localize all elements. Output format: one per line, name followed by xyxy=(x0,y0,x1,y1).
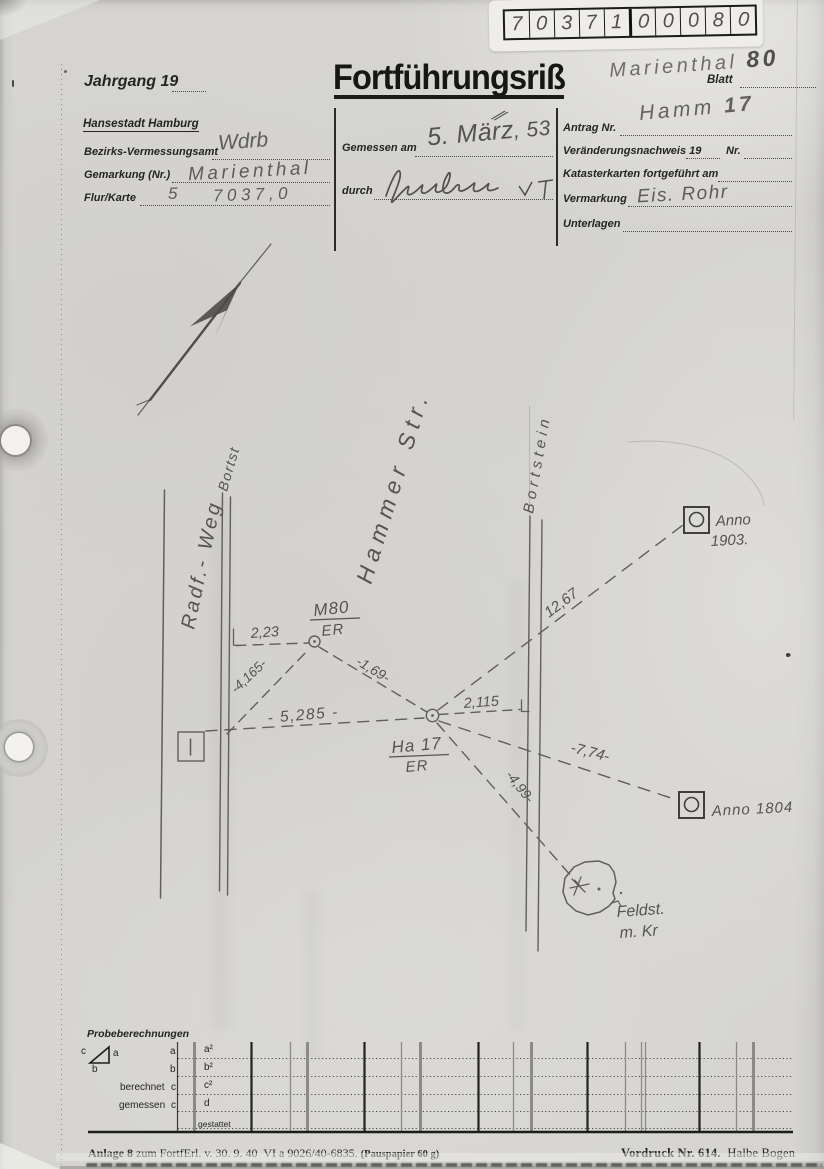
svg-text:Bortstein: Bortstein xyxy=(520,414,554,515)
svg-text:1903.: 1903. xyxy=(710,531,748,550)
svg-text:ER: ER xyxy=(321,621,345,640)
svg-text:Hammer Str.: Hammer Str. xyxy=(351,387,435,587)
svg-text:Ha 17: Ha 17 xyxy=(391,734,443,757)
svg-text:2,115: 2,115 xyxy=(462,694,500,713)
svg-text:-1,69-: -1,69- xyxy=(353,653,393,686)
svg-text:ER: ER xyxy=(405,757,429,776)
svg-text:-4,165-: -4,165- xyxy=(228,656,270,696)
svg-text:2,23: 2,23 xyxy=(249,624,279,642)
svg-text:-4,99-: -4,99- xyxy=(503,767,538,806)
svg-text:Feldst.: Feldst. xyxy=(616,901,665,921)
svg-text:m. Kr: m. Kr xyxy=(619,922,659,942)
svg-text:Bortst: Bortst xyxy=(215,445,243,493)
svg-text:M80: M80 xyxy=(312,597,350,620)
svg-text:Anno 1804: Anno 1804 xyxy=(710,799,793,820)
svg-text:-7,74-: -7,74- xyxy=(569,739,611,765)
svg-text:Anno: Anno xyxy=(714,511,751,530)
svg-text:12,67: 12,67 xyxy=(541,585,582,622)
svg-text:Radf.- Weg: Radf.- Weg xyxy=(177,499,226,631)
